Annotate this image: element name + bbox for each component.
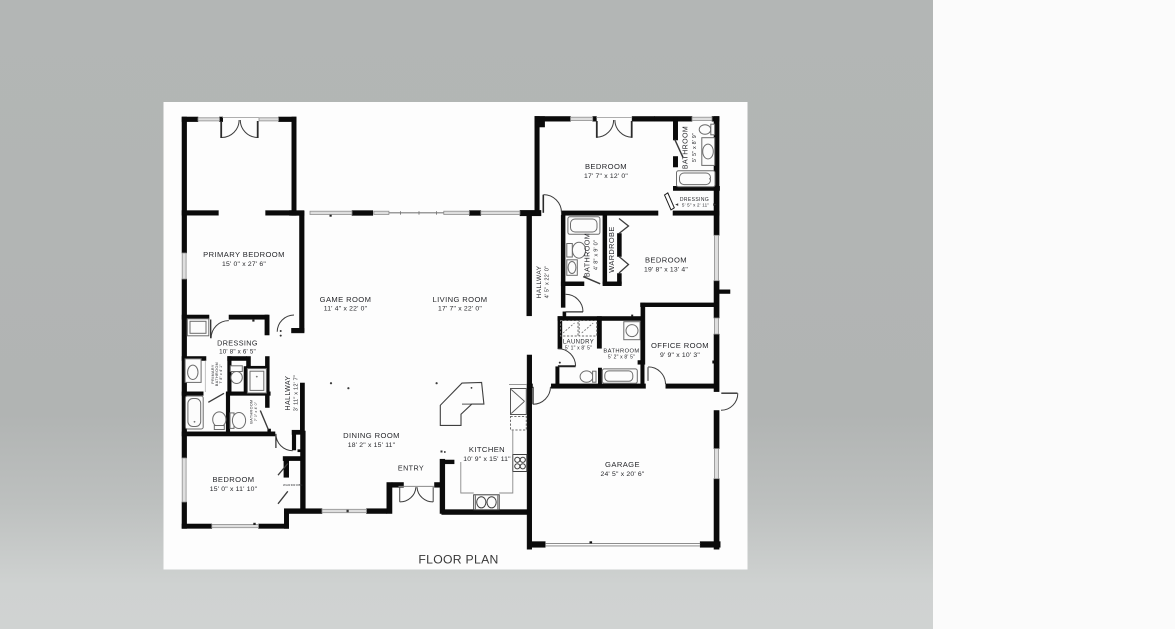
svg-text:10' 8" x 6' 5": 10' 8" x 6' 5" [219,349,256,356]
svg-text:HALLWAY: HALLWAY [536,265,543,298]
svg-text:5' 2" x 8' 5": 5' 2" x 8' 5" [608,355,635,361]
svg-text:15' 0" x 11' 10": 15' 0" x 11' 10" [210,486,258,493]
svg-text:BATHROOM: BATHROOM [683,126,690,169]
svg-text:17' 7" x 22' 0": 17' 7" x 22' 0" [438,305,482,312]
svg-text:5' 1" x 8' 5": 5' 1" x 8' 5" [565,346,592,352]
svg-text:17' 7" x 12' 0": 17' 7" x 12' 0" [584,173,628,180]
svg-text:24' 5" x 20' 6": 24' 5" x 20' 6" [600,471,644,478]
svg-text:WARDROBE: WARDROBE [607,226,616,272]
svg-text:9' 9" x 10' 3": 9' 9" x 10' 3" [660,352,700,359]
svg-text:GAME ROOM: GAME ROOM [320,295,372,304]
svg-text:19' 8" x 13' 4": 19' 8" x 13' 4" [644,267,688,274]
svg-text:4' 8" x 9' 0": 4' 8" x 9' 0" [594,240,600,270]
svg-text:BEDROOM: BEDROOM [645,256,687,265]
svg-text:10' 9" x 15' 11": 10' 9" x 15' 11" [463,456,511,463]
svg-text:HALLWAY: HALLWAY [285,376,292,411]
svg-text:4' 5" x 22' 0": 4' 5" x 22' 0" [545,266,551,298]
svg-text:LIVING ROOM: LIVING ROOM [432,295,487,304]
svg-text:5' 5" x 2' 11": 5' 5" x 2' 11" [682,203,709,208]
svg-text:BATHROOM: BATHROOM [583,233,592,277]
svg-text:15' 0" x 27' 6": 15' 0" x 27' 6" [222,261,266,268]
svg-text:ENTRY: ENTRY [398,464,424,473]
svg-text:7' 8" x 4' 1": 7' 8" x 4' 1" [219,364,223,384]
svg-text:GARAGE: GARAGE [605,460,640,469]
svg-text:DRESSING: DRESSING [217,339,258,348]
svg-text:PRIMARY BEDROOM: PRIMARY BEDROOM [203,250,285,259]
svg-text:WARDROBE: WARDROBE [283,483,303,487]
svg-text:KITCHEN: KITCHEN [469,445,505,454]
svg-text:3' 11" x 12' 7": 3' 11" x 12' 7" [294,375,300,411]
svg-text:DINING ROOM: DINING ROOM [343,431,400,440]
svg-text:7' 0" x 4' 0": 7' 0" x 4' 0" [254,401,258,421]
svg-text:5' 5" x 8' 9": 5' 5" x 8' 9" [692,133,698,162]
svg-text:11' 4" x 22' 0": 11' 4" x 22' 0" [324,305,368,312]
svg-text:18' 2" x 15' 11": 18' 2" x 15' 11" [348,442,396,449]
svg-text:BEDROOM: BEDROOM [212,475,254,484]
svg-text:BEDROOM: BEDROOM [585,162,627,171]
svg-text:OFFICE ROOM: OFFICE ROOM [651,341,709,350]
svg-text:FLOOR PLAN: FLOOR PLAN [418,553,498,567]
